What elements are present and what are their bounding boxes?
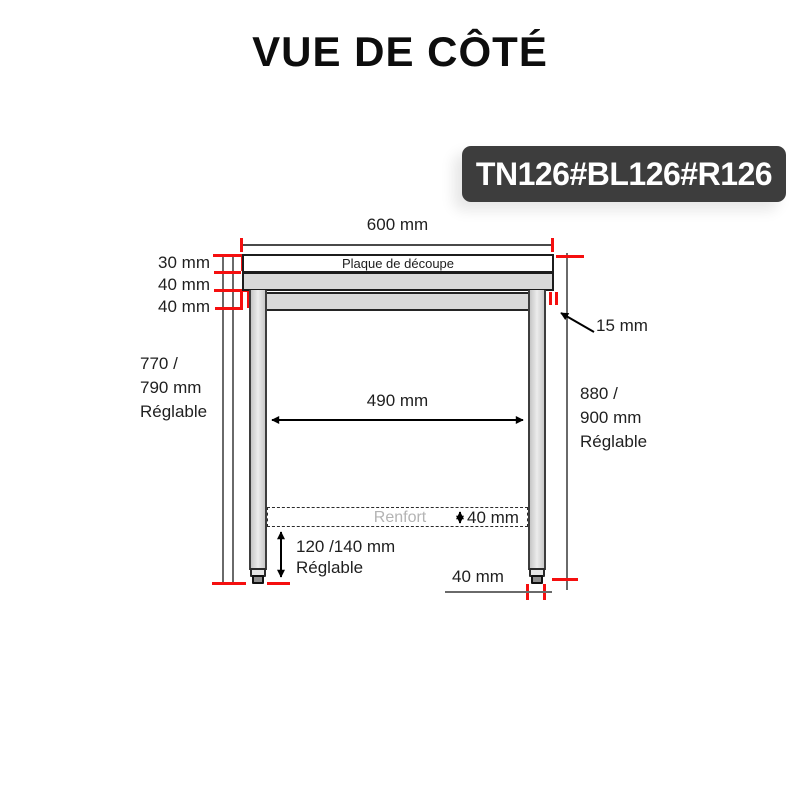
side-view-drawing: VUE DE CÔTÉ TN126#BL126#R126 600 mm Plaq…	[0, 0, 800, 800]
right-height-line3: Réglable	[580, 430, 647, 454]
renfort-label: Renfort	[340, 509, 460, 527]
red-tick-h	[552, 578, 578, 581]
dim-foot-width-line	[445, 591, 552, 593]
tabletop-plate: Plaque de découpe	[242, 254, 554, 273]
red-tick-h	[212, 582, 246, 585]
right-foot-lower	[531, 575, 543, 584]
dim-top-width-line	[242, 244, 553, 246]
red-tick-v	[549, 292, 552, 305]
red-tick-v	[240, 292, 243, 308]
red-tick-h	[267, 582, 290, 585]
right-dim-line	[566, 253, 568, 590]
red-tick-v	[551, 238, 554, 252]
model-badge-label: TN126#BL126#R126	[476, 156, 772, 193]
dim-top-thickness-label: 30 mm	[130, 253, 210, 273]
red-tick-v	[555, 292, 558, 305]
red-tick-h	[215, 307, 243, 310]
tabletop-frame	[242, 272, 554, 291]
dim-rail-thickness-label: 40 mm	[130, 297, 210, 317]
foot-adjust-line1: 120 /140 mm	[296, 537, 395, 557]
dim-overhang-label: 15 mm	[596, 316, 648, 336]
left-height-label: 770 / 790 mm Réglable	[140, 352, 207, 424]
right-height-line1: 880 /	[580, 382, 647, 406]
left-height-line1: 770 /	[140, 352, 207, 376]
dim-frame-thickness-label: 40 mm	[130, 275, 210, 295]
dim-inner-width-label: 490 mm	[267, 391, 528, 411]
model-badge: TN126#BL126#R126	[462, 146, 786, 202]
right-height-line2: 900 mm	[580, 406, 647, 430]
left-height-line2: 790 mm	[140, 376, 207, 400]
dim-foot-width-label: 40 mm	[438, 567, 518, 587]
renfort-height-label: 40 mm	[467, 508, 519, 528]
left-foot-lower	[252, 575, 264, 584]
red-tick-h	[213, 254, 243, 257]
right-height-label: 880 / 900 mm Réglable	[580, 382, 647, 454]
left-dim-line-outer	[222, 257, 224, 583]
plate-label: Plaque de découpe	[342, 256, 454, 271]
right-leg	[528, 290, 546, 570]
foot-adjust-line2: Réglable	[296, 558, 363, 578]
left-dim-line-inner	[232, 257, 234, 583]
upper-rail	[267, 292, 528, 311]
page-title: VUE DE CÔTÉ	[0, 28, 800, 76]
dim-top-width-label: 600 mm	[242, 215, 553, 235]
red-tick-h	[214, 271, 241, 274]
left-height-line3: Réglable	[140, 400, 207, 424]
red-tick-v	[240, 238, 243, 252]
red-tick-h	[556, 255, 584, 258]
left-leg	[249, 290, 267, 570]
